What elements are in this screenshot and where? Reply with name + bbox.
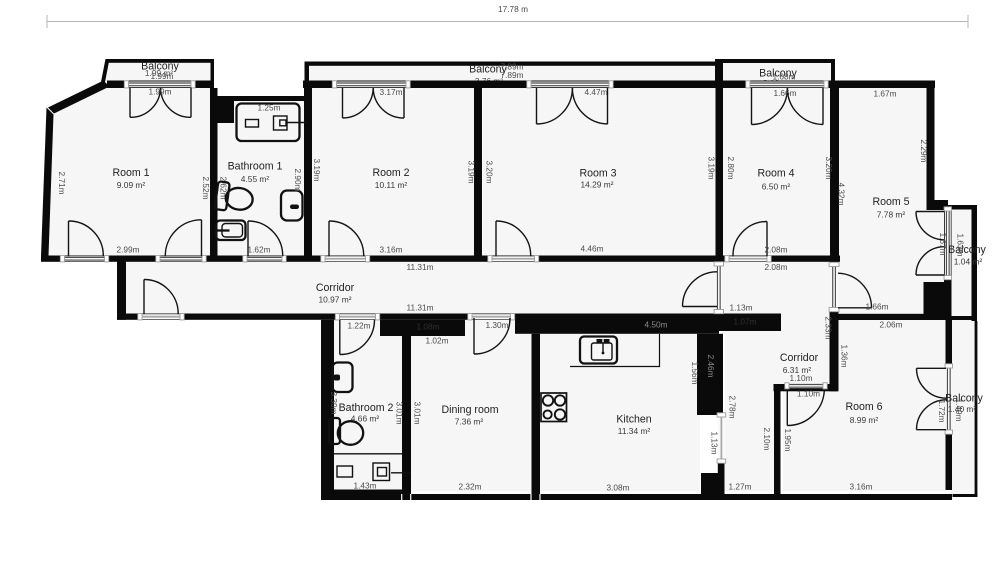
svg-text:2.10m: 2.10m <box>762 427 772 450</box>
svg-text:2.33m: 2.33m <box>824 316 834 339</box>
svg-text:1.13m: 1.13m <box>710 431 720 454</box>
svg-text:4.66 m²: 4.66 m² <box>351 414 380 424</box>
svg-text:4.46m: 4.46m <box>580 244 603 254</box>
svg-text:1.62m: 1.62m <box>247 245 270 255</box>
svg-text:1.13m: 1.13m <box>729 303 752 313</box>
svg-text:1.99m: 1.99m <box>148 87 171 97</box>
svg-text:1.67m: 1.67m <box>873 89 896 99</box>
svg-text:Bathroom 1: Bathroom 1 <box>228 161 283 173</box>
svg-text:17.78 m: 17.78 m <box>498 4 528 14</box>
svg-text:8.99 m²: 8.99 m² <box>850 415 879 425</box>
svg-text:2.71m: 2.71m <box>57 171 67 194</box>
svg-text:1.10m: 1.10m <box>789 373 812 383</box>
svg-text:Dining room: Dining room <box>441 404 498 416</box>
svg-text:1.56m: 1.56m <box>690 361 700 384</box>
svg-text:3.19m: 3.19m <box>707 156 717 179</box>
svg-text:3.30m: 3.30m <box>329 391 339 414</box>
svg-text:10.11 m²: 10.11 m² <box>375 180 408 190</box>
svg-text:1.02m: 1.02m <box>425 336 448 346</box>
svg-text:3.01m: 3.01m <box>413 401 423 424</box>
svg-text:2.62m: 2.62m <box>219 176 229 199</box>
svg-text:1.99m: 1.99m <box>150 71 173 81</box>
svg-text:3.19m: 3.19m <box>312 158 322 181</box>
svg-text:1.68m: 1.68m <box>772 72 795 82</box>
svg-text:2.52m: 2.52m <box>201 176 211 199</box>
svg-text:1.07m: 1.07m <box>733 317 756 327</box>
svg-text:Kitchen: Kitchen <box>616 414 651 426</box>
svg-text:1.10m: 1.10m <box>797 389 820 399</box>
svg-text:1.22m: 1.22m <box>347 321 370 331</box>
svg-text:4.47m: 4.47m <box>584 87 607 97</box>
svg-text:2.80m: 2.80m <box>726 156 736 179</box>
svg-text:3.20m: 3.20m <box>485 160 495 183</box>
svg-text:Room 5: Room 5 <box>872 196 909 208</box>
svg-text:11.34 m²: 11.34 m² <box>618 426 651 436</box>
svg-text:11.31m: 11.31m <box>406 303 433 313</box>
svg-text:Room 3: Room 3 <box>579 168 616 180</box>
svg-text:1.67m: 1.67m <box>938 232 948 255</box>
svg-text:7.89m: 7.89m <box>500 70 523 80</box>
svg-text:1.25m: 1.25m <box>257 103 280 113</box>
svg-text:7.36 m²: 7.36 m² <box>455 417 484 427</box>
svg-text:Bathroom 2: Bathroom 2 <box>339 402 394 414</box>
svg-text:7.78 m²: 7.78 m² <box>877 210 906 220</box>
svg-text:1.95m: 1.95m <box>783 428 793 451</box>
svg-text:3.17m: 3.17m <box>379 87 402 97</box>
svg-text:1.49m: 1.49m <box>954 398 964 421</box>
svg-text:2.90m: 2.90m <box>293 168 303 191</box>
svg-text:2.78m: 2.78m <box>728 395 738 418</box>
svg-text:Room 4: Room 4 <box>757 168 794 180</box>
svg-text:3.16m: 3.16m <box>849 482 872 492</box>
svg-text:3.01m: 3.01m <box>395 401 405 424</box>
svg-text:1.72m: 1.72m <box>937 399 947 422</box>
svg-text:1.30m: 1.30m <box>485 320 508 330</box>
svg-text:1.08m: 1.08m <box>416 322 439 332</box>
svg-text:4.50m: 4.50m <box>644 320 667 330</box>
svg-text:Room 1: Room 1 <box>112 167 149 179</box>
svg-text:1.63m: 1.63m <box>956 233 966 256</box>
svg-text:6.50 m²: 6.50 m² <box>762 182 791 192</box>
svg-text:2.29m: 2.29m <box>919 139 929 162</box>
svg-text:Balcony: Balcony <box>948 244 986 256</box>
svg-text:1.43m: 1.43m <box>353 481 376 491</box>
svg-text:Corridor: Corridor <box>780 352 819 364</box>
svg-text:1.04 m²: 1.04 m² <box>954 257 983 267</box>
svg-text:14.29 m²: 14.29 m² <box>580 180 613 190</box>
svg-text:3.08m: 3.08m <box>606 483 629 493</box>
svg-text:2.08m: 2.08m <box>764 245 787 255</box>
svg-text:1.27m: 1.27m <box>728 482 751 492</box>
svg-text:2.32m: 2.32m <box>458 482 481 492</box>
svg-text:1.66m: 1.66m <box>865 302 888 312</box>
svg-text:1.66m: 1.66m <box>773 88 796 98</box>
svg-text:Corridor: Corridor <box>316 282 355 294</box>
svg-text:4.55 m²: 4.55 m² <box>241 174 270 184</box>
svg-text:4.32m: 4.32m <box>837 182 847 205</box>
svg-text:3.20m: 3.20m <box>824 156 834 179</box>
svg-text:11.31m: 11.31m <box>406 262 433 272</box>
svg-text:2.99m: 2.99m <box>116 245 139 255</box>
svg-text:3.16m: 3.16m <box>379 245 402 255</box>
svg-text:Room 6: Room 6 <box>845 401 882 413</box>
svg-text:2.46m: 2.46m <box>706 354 716 377</box>
svg-text:9.09 m²: 9.09 m² <box>117 180 146 190</box>
svg-text:3.19m: 3.19m <box>467 160 477 183</box>
svg-text:10.97 m²: 10.97 m² <box>318 295 351 305</box>
svg-text:2.08m: 2.08m <box>764 262 787 272</box>
svg-text:Room 2: Room 2 <box>372 167 409 179</box>
svg-text:1.36m: 1.36m <box>840 344 850 367</box>
svg-text:2.06m: 2.06m <box>879 320 902 330</box>
